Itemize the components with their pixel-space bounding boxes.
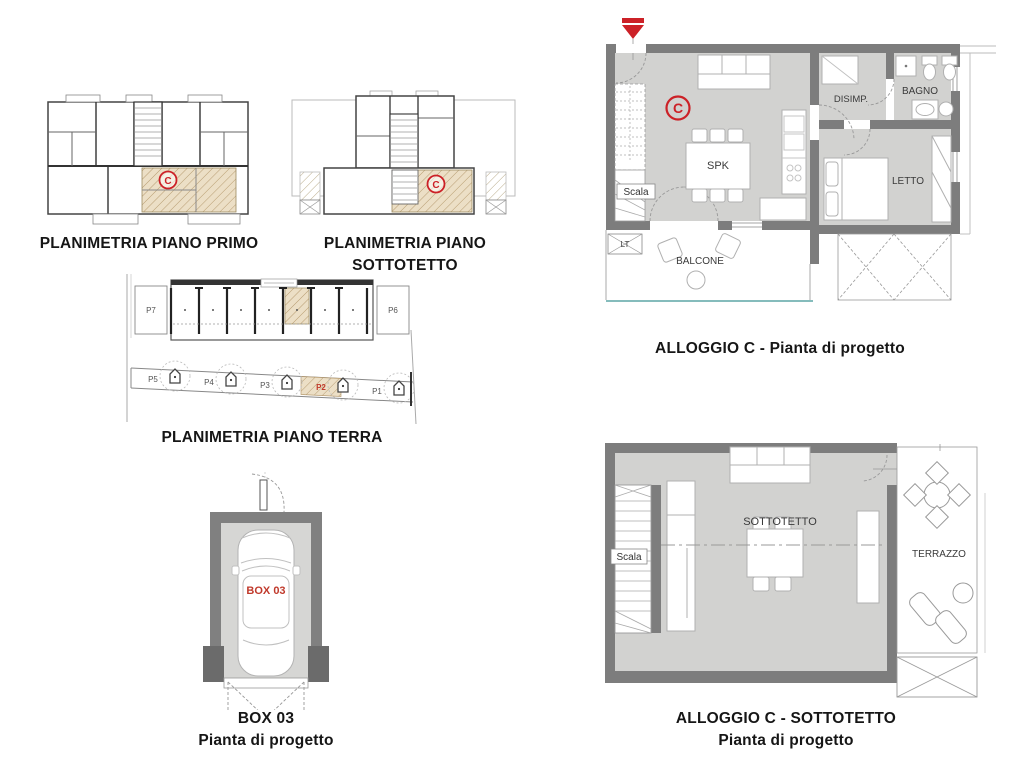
lt-label: LT <box>621 240 630 249</box>
gate-swing-arc <box>252 474 284 512</box>
stairs: Scala <box>611 485 651 633</box>
caption-box03-line1: BOX 03 <box>148 708 384 730</box>
parking-p4-label: P4 <box>204 378 214 387</box>
unit-c-label: C <box>432 180 439 191</box>
wall-left <box>210 512 221 648</box>
stall-p7-label: P7 <box>146 306 156 315</box>
stairs <box>390 114 418 168</box>
garage-hatched-stall <box>285 288 309 324</box>
parking-p3-label: P3 <box>260 381 270 390</box>
pier-left <box>203 646 224 682</box>
cabinet <box>857 511 879 603</box>
threshold <box>224 678 308 688</box>
stall-p6-label: P6 <box>388 306 398 315</box>
scala-label: Scala <box>616 552 641 563</box>
room-sottotetto-label: SOTTOTETTO <box>743 516 817 528</box>
balcony-top-2 <box>126 95 152 102</box>
caption-box03-line2: Pianta di progetto <box>148 730 384 752</box>
roof-strip-right <box>486 172 506 200</box>
closet <box>667 481 695 631</box>
skylight-box <box>897 657 977 697</box>
wardrobe <box>932 136 951 222</box>
wall-right <box>311 512 322 648</box>
pier-right <box>308 646 329 682</box>
caption-piano-primo: PLANIMETRIA PIANO PRIMO <box>38 233 260 255</box>
gate-leaf <box>260 480 267 510</box>
bed <box>824 158 888 220</box>
caption-sottotetto-line2: Pianta di progetto <box>636 730 936 752</box>
plan-alloggio-c: Scala C <box>598 12 1000 314</box>
balcony-bottom-1 <box>93 214 138 224</box>
parking-strip: P5 P4 P3 P2 P1 <box>131 361 414 403</box>
unit-c-label: C <box>673 100 683 116</box>
caption-sottotetto-line1: ALLOGGIO C - SOTTOTETTO <box>636 708 936 730</box>
plan-piano-primo: C <box>38 88 260 234</box>
stairs <box>134 102 162 166</box>
terrace: TERRAZZO <box>897 444 985 697</box>
caption-box03: BOX 03 Pianta di progetto <box>148 708 384 752</box>
caption-alloggio-c: ALLOGGIO C - Pianta di progetto <box>598 338 962 360</box>
floorplan-sheet: C PLANIMETRIA PIANO PRIMO <box>0 0 1024 768</box>
garage-row <box>171 279 373 340</box>
balcony-bottom-2 <box>188 214 240 224</box>
roof-edge-lines <box>960 46 996 234</box>
room-terrazzo-label: TERRAZZO <box>912 549 966 560</box>
entrance-arrow-icon <box>622 18 644 39</box>
balcony-top-3 <box>188 95 222 102</box>
caption-piano-terra: PLANIMETRIA PIANO TERRA <box>123 427 421 449</box>
plan-piano-sottotetto: C <box>286 88 524 234</box>
caption-piano-sottotetto: PLANIMETRIA PIANO SOTTOTETTO <box>276 233 534 277</box>
balcony-top-1 <box>66 95 100 102</box>
parking-p1-label: P1 <box>372 387 382 396</box>
unit-c-area: C <box>392 170 472 212</box>
room-letto-label: LETTO <box>892 176 924 187</box>
sofa <box>730 447 810 483</box>
skylight-right <box>486 200 506 214</box>
room-disimp-label: DISIMP. <box>834 94 868 105</box>
parking-p2-label: P2 <box>316 383 326 392</box>
wall-top <box>210 512 322 523</box>
room-bagno-label: BAGNO <box>902 86 938 97</box>
plan-alloggio-c-sottotetto: Scala SOTTOTETTO <box>595 433 995 701</box>
scala-label: Scala <box>623 187 648 198</box>
parking-p5-label: P5 <box>148 375 158 384</box>
unit-c-label: C <box>164 176 171 187</box>
room-spk-label: SPK <box>707 160 730 172</box>
plan-piano-terra: P7 P6 <box>123 272 421 428</box>
unit-c-area: C <box>142 168 236 212</box>
box03-label: BOX 03 <box>246 585 285 597</box>
caption-alloggio-c-sottotetto: ALLOGGIO C - SOTTOTETTO Pianta di proget… <box>636 708 936 752</box>
skylight-left <box>300 200 320 214</box>
sofa <box>698 55 770 89</box>
room-balcone-label: BALCONE <box>676 256 724 267</box>
terrace-lower <box>838 234 951 300</box>
shower <box>822 56 858 84</box>
roof-strip-left <box>300 172 320 200</box>
car-icon <box>232 530 300 676</box>
plan-box03: BOX 03 <box>198 468 334 710</box>
lt-box: LT <box>608 234 642 254</box>
